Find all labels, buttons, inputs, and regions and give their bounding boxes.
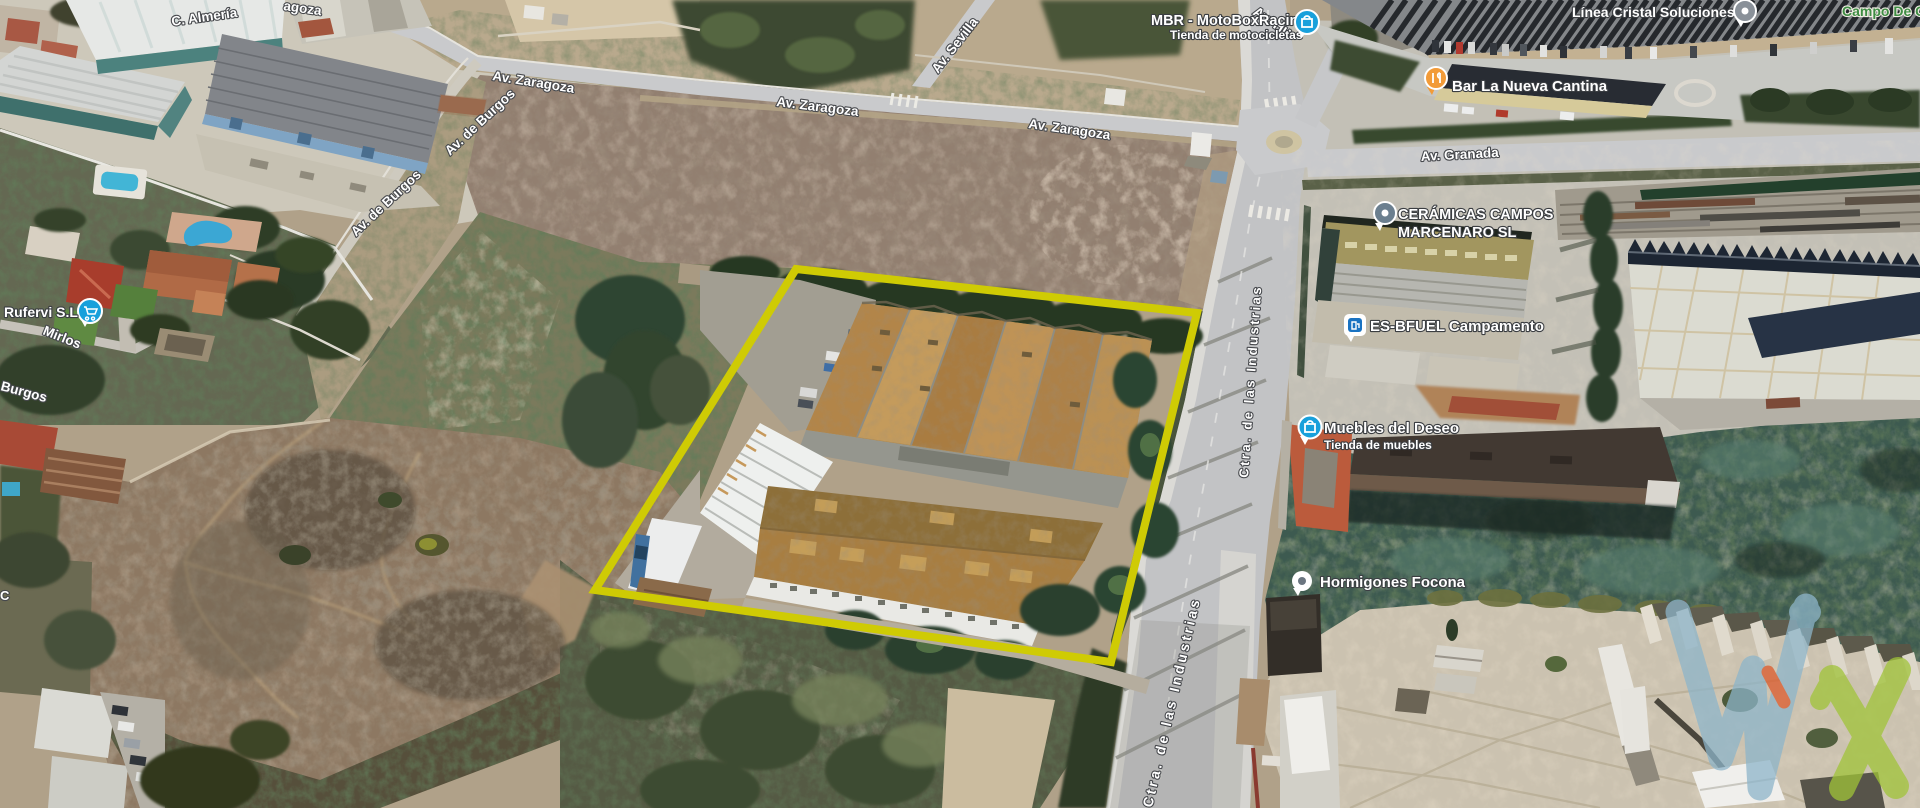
svg-text:Campo De G: Campo De G	[1842, 3, 1920, 19]
svg-text:Hormigones Focona: Hormigones Focona	[1320, 574, 1466, 591]
svg-text:Línea Cristal Soluciones: Línea Cristal Soluciones	[1572, 4, 1735, 20]
svg-text:ES-BFUEL Campamento: ES-BFUEL Campamento	[1370, 318, 1544, 335]
svg-text:Rufervi S.L: Rufervi S.L	[4, 304, 78, 320]
svg-text:Bar La Nueva Cantina: Bar La Nueva Cantina	[1452, 78, 1608, 95]
svg-text:MBR - MotoBoxRacing: MBR - MotoBoxRacing	[1151, 13, 1307, 29]
svg-text:C: C	[0, 588, 10, 603]
svg-text:CERÁMICAS CAMPOS: CERÁMICAS CAMPOS	[1398, 206, 1554, 223]
svg-text:Muebles del Deseo: Muebles del Deseo	[1324, 420, 1459, 437]
svg-text:Tienda de motocicletas: Tienda de motocicletas	[1170, 28, 1303, 42]
svg-text:Tienda de muebles: Tienda de muebles	[1324, 438, 1432, 452]
svg-text:MARCENARO SL: MARCENARO SL	[1398, 225, 1517, 241]
